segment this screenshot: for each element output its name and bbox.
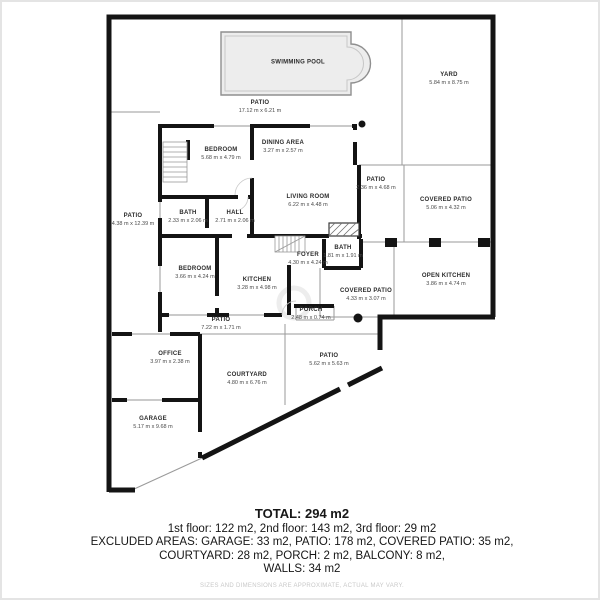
area-summary: TOTAL: 294 m2 1st floor: 122 m2, 2nd flo… [2, 506, 600, 590]
fireplace [329, 223, 359, 236]
floor-plan-page: SWIMMING POOLYARD5.84 m x 8.75 mPATIO17.… [0, 0, 600, 600]
swimming-pool [221, 32, 371, 95]
summary-excluded-line1: EXCLUDED AREAS: GARAGE: 33 m2, PATIO: 17… [2, 536, 600, 549]
summary-excluded-line2: COURTYARD: 28 m2, PORCH: 2 m2, BALCONY: … [2, 550, 600, 563]
summary-walls: WALLS: 34 m2 [2, 563, 600, 576]
summary-floors: 1st floor: 122 m2, 2nd floor: 143 m2, 3r… [2, 523, 600, 536]
interior-walls [112, 124, 362, 458]
watermark-logo [279, 288, 309, 318]
summary-disclaimer: SIZES AND DIMENSIONS ARE APPROXIMATE, AC… [2, 583, 600, 590]
summary-total: TOTAL: 294 m2 [2, 506, 600, 521]
staircase-upper [163, 142, 187, 182]
staircase-foyer [275, 236, 305, 252]
